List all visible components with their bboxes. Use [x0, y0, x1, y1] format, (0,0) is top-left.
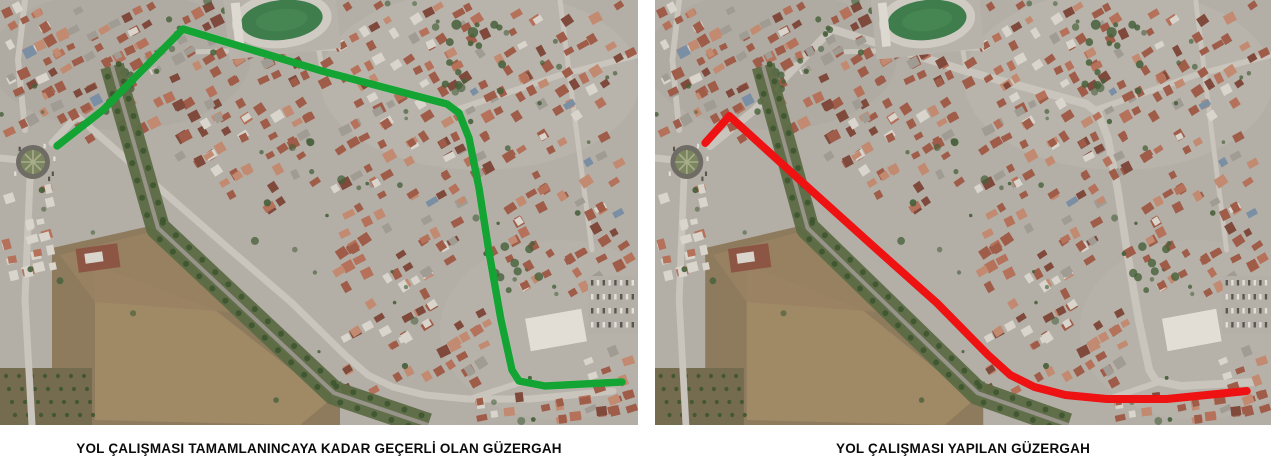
roadwork-route-map-panel: [655, 0, 1271, 425]
detour-route-caption: YOL ÇALIŞMASI TAMAMLANINCAYA KADAR GEÇER…: [0, 441, 638, 459]
roadwork-route-caption: YOL ÇALIŞMASI YAPILAN GÜZERGAH: [655, 441, 1271, 459]
satellite-map-after: [655, 0, 1271, 425]
satellite-map-before: [0, 0, 638, 425]
detour-route-map-panel: [0, 0, 638, 425]
roadwork-notice-image: YOL ÇALIŞMASI TAMAMLANINCAYA KADAR GEÇER…: [0, 0, 1280, 472]
